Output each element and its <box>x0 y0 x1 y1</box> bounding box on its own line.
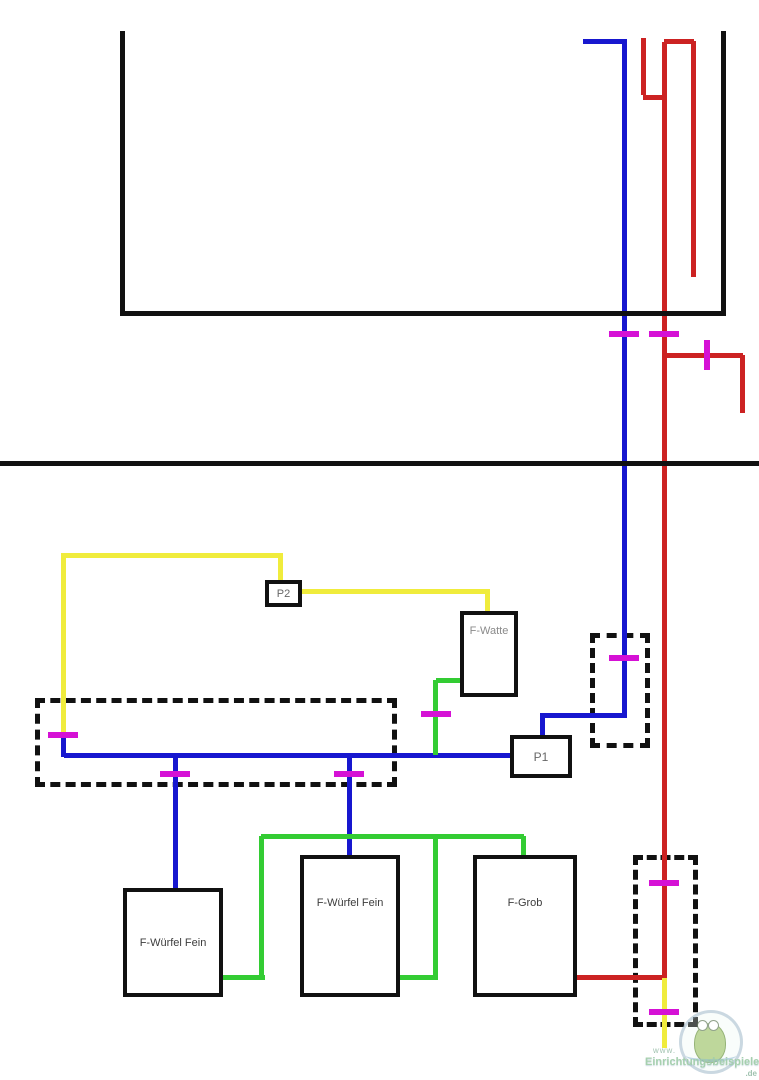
fish-icon <box>694 1023 726 1063</box>
wuerfel2-riser-pipe <box>433 836 438 977</box>
tank-bottom <box>120 311 726 316</box>
return-outlet-in-tank-pipe <box>691 41 696 277</box>
box-f-grob: F-Grob <box>473 855 577 997</box>
pump2-to-fwatte-horizontal-pipe <box>302 589 490 594</box>
return-hook-vertical-pipe <box>641 38 646 95</box>
fwatte-drop-pipe <box>485 591 490 613</box>
box-f-wuerfel-fein-1: F-Würfel Fein <box>123 888 223 997</box>
wuerfel1-riser-pipe <box>259 836 264 978</box>
box-p1: P1 <box>510 735 572 778</box>
box-p1-label: P1 <box>534 750 549 764</box>
valve-tick <box>609 331 639 337</box>
fgrob-outlet-horizontal-pipe <box>577 975 665 980</box>
valve-tick <box>421 711 451 717</box>
box-p2: P2 <box>265 580 302 607</box>
fwatte-exit-horizontal-pipe <box>436 678 462 683</box>
valve-tick <box>48 732 78 738</box>
box-f-watte-label: F-Watte <box>470 615 509 637</box>
box-f-wuerfel-fein-2-label: F-Würfel Fein <box>317 859 384 909</box>
watermark-site-name: Einrichtungsbeispiele <box>645 1056 759 1068</box>
box-f-watte: F-Watte <box>460 611 518 697</box>
fish-eye-icon <box>697 1020 708 1031</box>
return-u-top-pipe <box>664 39 694 44</box>
valve-tick <box>704 340 710 370</box>
intake-main-vertical-pipe <box>622 39 627 715</box>
intake-top-horizontal-pipe <box>583 39 624 44</box>
intake-elbow-horizontal-pipe <box>542 713 627 718</box>
right-branch-drop-pipe <box>740 355 745 413</box>
box-f-grob-label: F-Grob <box>508 859 543 909</box>
return-main-vertical-pipe <box>662 42 667 978</box>
piping-diagram: www. Einrichtungsbeispiele .de P2F-Watte… <box>0 0 759 1080</box>
valve-tick <box>334 771 364 777</box>
manifold-horizontal-pipe <box>64 753 512 758</box>
valve-tick <box>649 331 679 337</box>
pump2-drop-pipe <box>278 555 283 582</box>
tank-left-wall <box>120 31 125 315</box>
valve-tick <box>649 1009 679 1015</box>
wave-icon <box>686 1049 736 1062</box>
watermark-tld: .de <box>745 1069 757 1078</box>
manifold-left-riser-pipe <box>61 737 66 757</box>
valve-tick <box>609 655 639 661</box>
fish-eye-icon <box>708 1020 719 1031</box>
cabinet-divider-line <box>0 461 759 466</box>
p1-top-riser-pipe <box>540 713 545 737</box>
box-f-wuerfel-fein-1-label: F-Würfel Fein <box>140 937 207 949</box>
box-f-wuerfel-fein-2: F-Würfel Fein <box>300 855 400 997</box>
pump2-top-horizontal-pipe <box>61 553 283 558</box>
valve-tick <box>649 880 679 886</box>
valve-tick <box>160 771 190 777</box>
fwatte-down-vertical-pipe <box>433 680 438 755</box>
dashed-zone-intake <box>590 633 650 748</box>
box-p2-label: P2 <box>277 588 290 600</box>
tank-right-wall <box>721 31 726 316</box>
collector-top-horizontal-pipe <box>261 834 524 839</box>
left-down-vertical-pipe <box>61 556 66 737</box>
drop-into-fgrob-pipe <box>521 836 526 857</box>
